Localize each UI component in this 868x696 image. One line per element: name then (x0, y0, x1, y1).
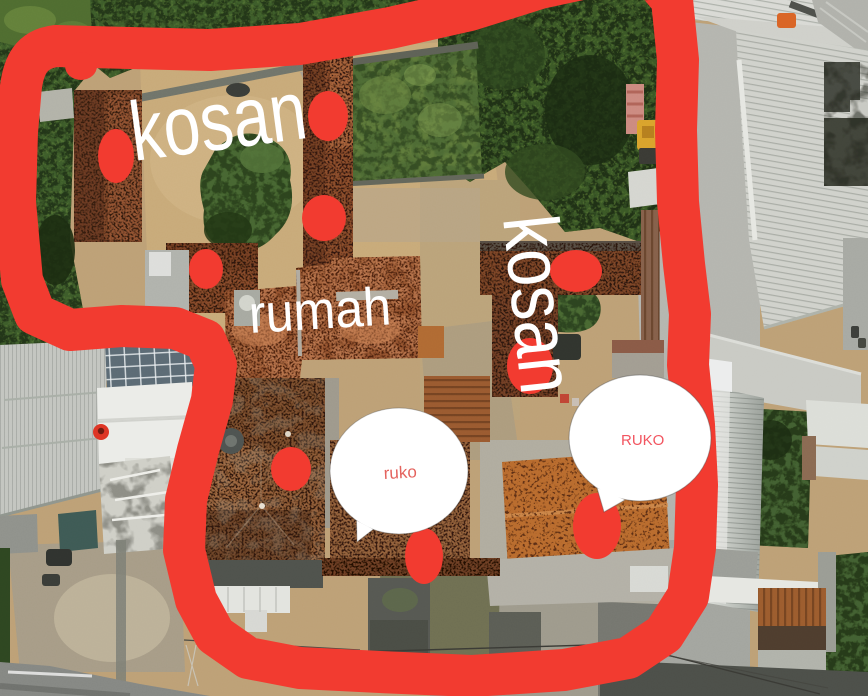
svg-text:ruko: ruko (383, 462, 417, 483)
svg-text:rumah: rumah (247, 277, 393, 346)
svg-text:kosan: kosan (486, 211, 591, 398)
svg-text:RUKO: RUKO (621, 432, 664, 449)
